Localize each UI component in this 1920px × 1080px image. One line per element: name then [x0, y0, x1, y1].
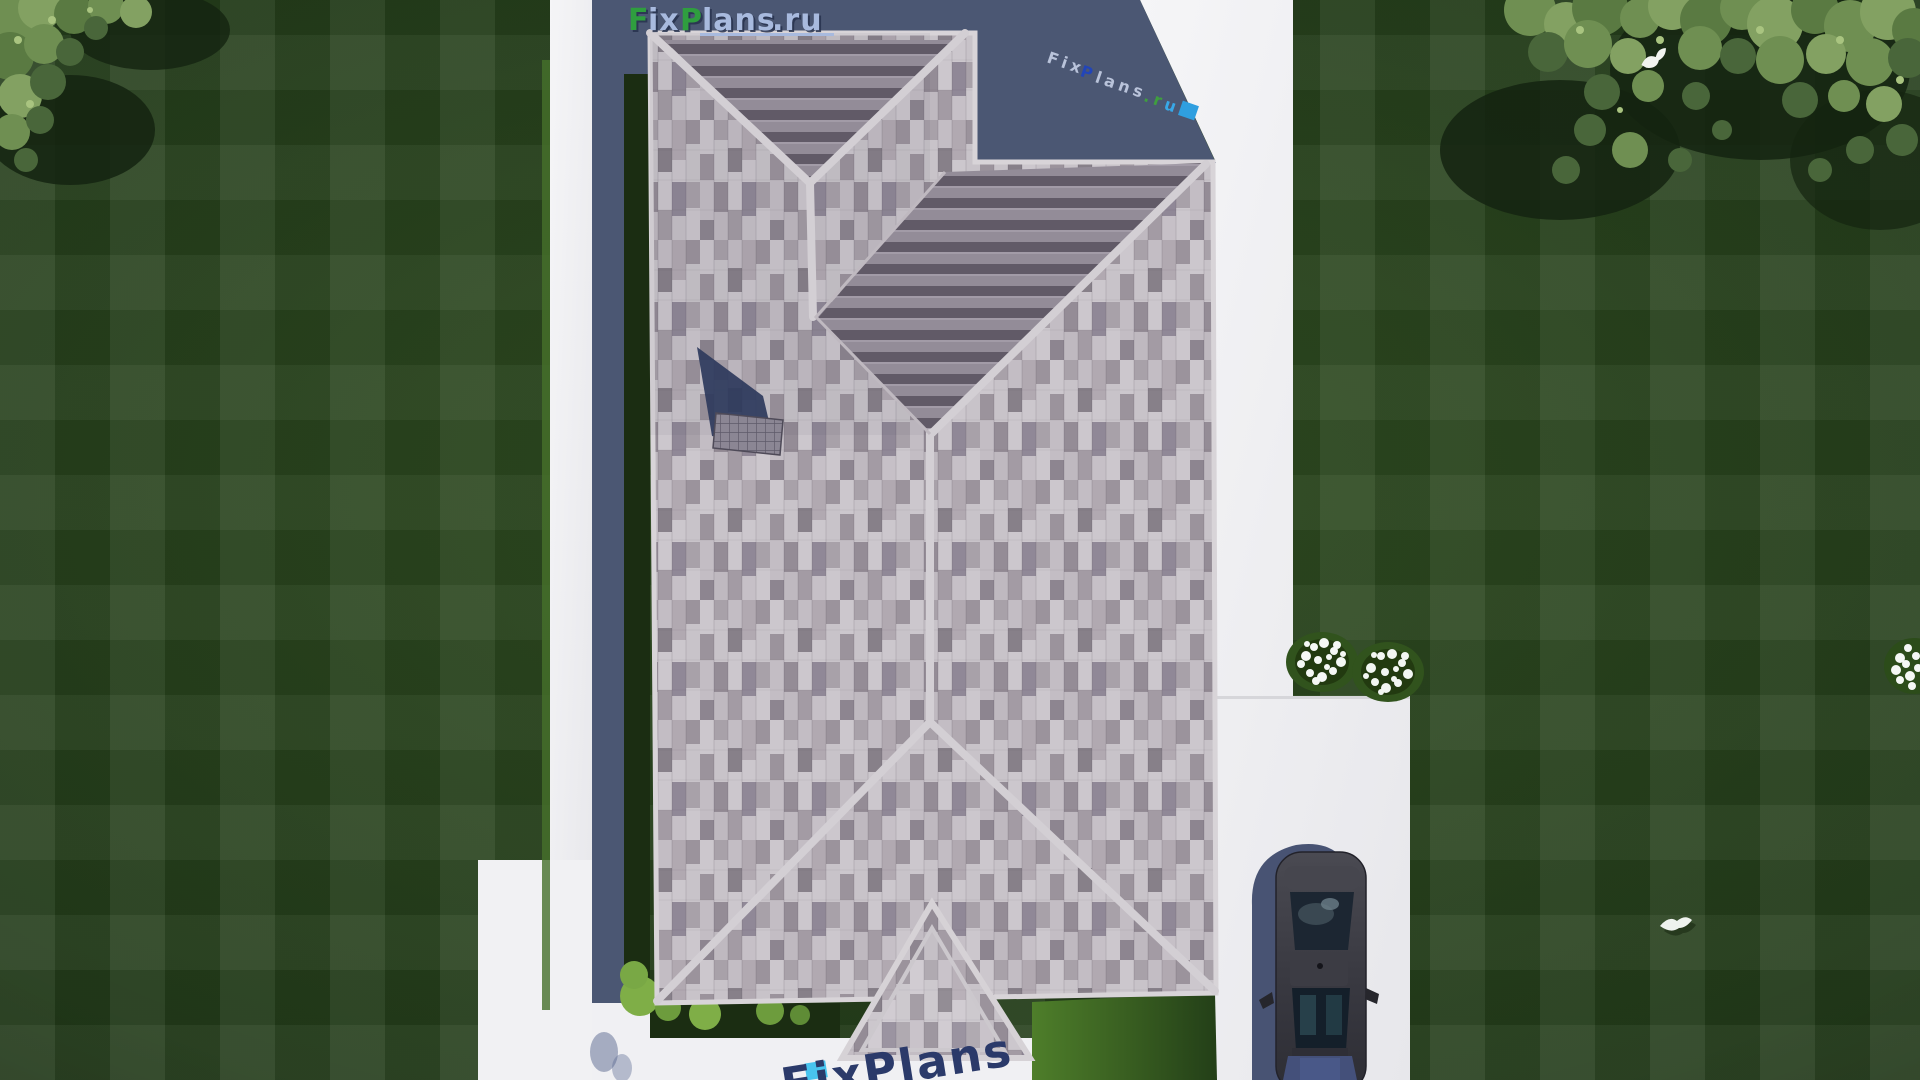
lawn-edge-strip — [542, 60, 550, 1010]
logo-letters-lans: lans — [702, 3, 776, 38]
watermark-logo: F ix P lans .ru F ix P lans .ru — [628, 3, 834, 40]
logo-letters-ru: .ru — [772, 3, 823, 38]
tree-top-left — [0, 0, 230, 185]
bush — [620, 961, 648, 989]
car-interior — [1326, 995, 1342, 1035]
car-roof — [1290, 952, 1348, 986]
ridge — [810, 183, 813, 317]
flower-bush — [1286, 632, 1358, 692]
car-interior — [1300, 995, 1316, 1035]
logo-letter-f: F — [628, 3, 650, 38]
bird-on-lawn — [1660, 917, 1696, 935]
flower-bushes — [1286, 632, 1920, 702]
chimney-cap — [713, 413, 783, 455]
render-canvas: Fix P lans .r u — [0, 0, 1920, 1080]
sunlit-grass-patch — [1032, 993, 1217, 1080]
car-rear-deck — [1284, 866, 1360, 890]
car-cowl — [1292, 1048, 1348, 1057]
flower-bush-edge — [1884, 638, 1920, 694]
car — [1252, 844, 1379, 1080]
logo-letters-ix: ix — [648, 3, 680, 38]
house-roof — [650, 33, 1216, 1058]
window-reflection — [1321, 898, 1339, 910]
left-hedge — [624, 74, 650, 1004]
bush — [790, 1005, 810, 1025]
car-hood-highlight — [1300, 1058, 1340, 1080]
bottom-left-apron — [478, 860, 592, 1080]
tree-top-right — [1440, 0, 1920, 230]
flower-bush — [1352, 642, 1424, 702]
car-antenna — [1317, 963, 1323, 969]
aerial-site-render: Fix P lans .r u — [0, 0, 1920, 1080]
logo-underline — [700, 33, 834, 36]
logo-letter-p: P — [680, 3, 703, 38]
